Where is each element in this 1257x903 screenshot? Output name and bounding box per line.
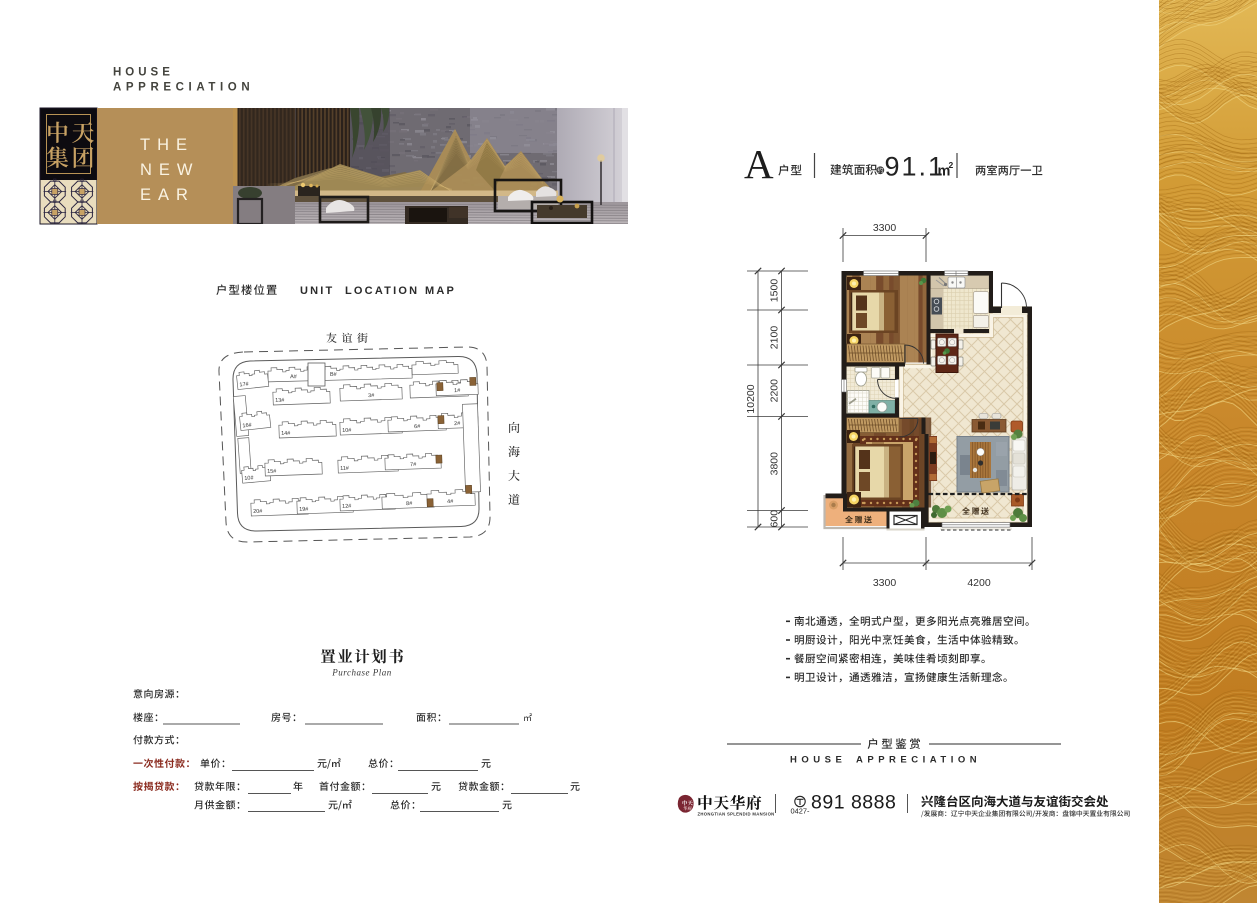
svg-text:A: A (744, 141, 774, 187)
svg-text:14#: 14# (281, 431, 291, 437)
svg-text:HOUSE: HOUSE (113, 67, 174, 79)
svg-text:600: 600 (769, 510, 781, 528)
svg-text:2100: 2100 (769, 326, 781, 350)
svg-text:EAR: EAR (140, 186, 195, 204)
svg-text:19#: 19# (299, 507, 309, 513)
svg-text:10#: 10# (244, 475, 255, 482)
svg-text:NEW: NEW (140, 161, 200, 179)
svg-text:APPRECIATION: APPRECIATION (113, 82, 254, 94)
svg-text:4200: 4200 (967, 577, 991, 589)
svg-text:16#: 16# (242, 422, 253, 429)
svg-text:APPRECIATION: APPRECIATION (856, 755, 981, 766)
svg-text:3300: 3300 (873, 577, 897, 589)
svg-text:HOUSE: HOUSE (790, 755, 846, 766)
svg-text:3800: 3800 (769, 452, 781, 476)
svg-text:Purchase Plan: Purchase Plan (331, 668, 391, 678)
svg-text:891 8888: 891 8888 (811, 792, 896, 814)
svg-text:11#: 11# (340, 466, 350, 472)
svg-text:ZHONGTIAN SPLENDID MANSION: ZHONGTIAN SPLENDID MANSION (698, 812, 775, 817)
svg-text:2200: 2200 (769, 379, 781, 403)
svg-text:B#: B# (330, 372, 338, 378)
svg-text:3300: 3300 (873, 222, 897, 234)
svg-text:17#: 17# (239, 381, 250, 388)
svg-text:LOCATION: LOCATION (345, 285, 419, 297)
svg-text:A#: A# (290, 374, 298, 380)
svg-text:THE: THE (140, 136, 194, 154)
svg-text:15#: 15# (267, 469, 277, 475)
svg-text:10#: 10# (342, 428, 352, 434)
svg-text:1500: 1500 (769, 279, 781, 303)
svg-text:MAP: MAP (425, 285, 456, 297)
svg-text:12#: 12# (342, 504, 352, 510)
svg-text:0427-: 0427- (791, 807, 811, 816)
svg-text:13#: 13# (275, 398, 285, 404)
svg-text:10200: 10200 (745, 384, 757, 413)
svg-text:20#: 20# (253, 509, 263, 515)
svg-text:UNIT: UNIT (300, 285, 334, 297)
svg-text:91.1: 91.1 (885, 152, 946, 182)
svg-text:2: 2 (949, 160, 954, 170)
